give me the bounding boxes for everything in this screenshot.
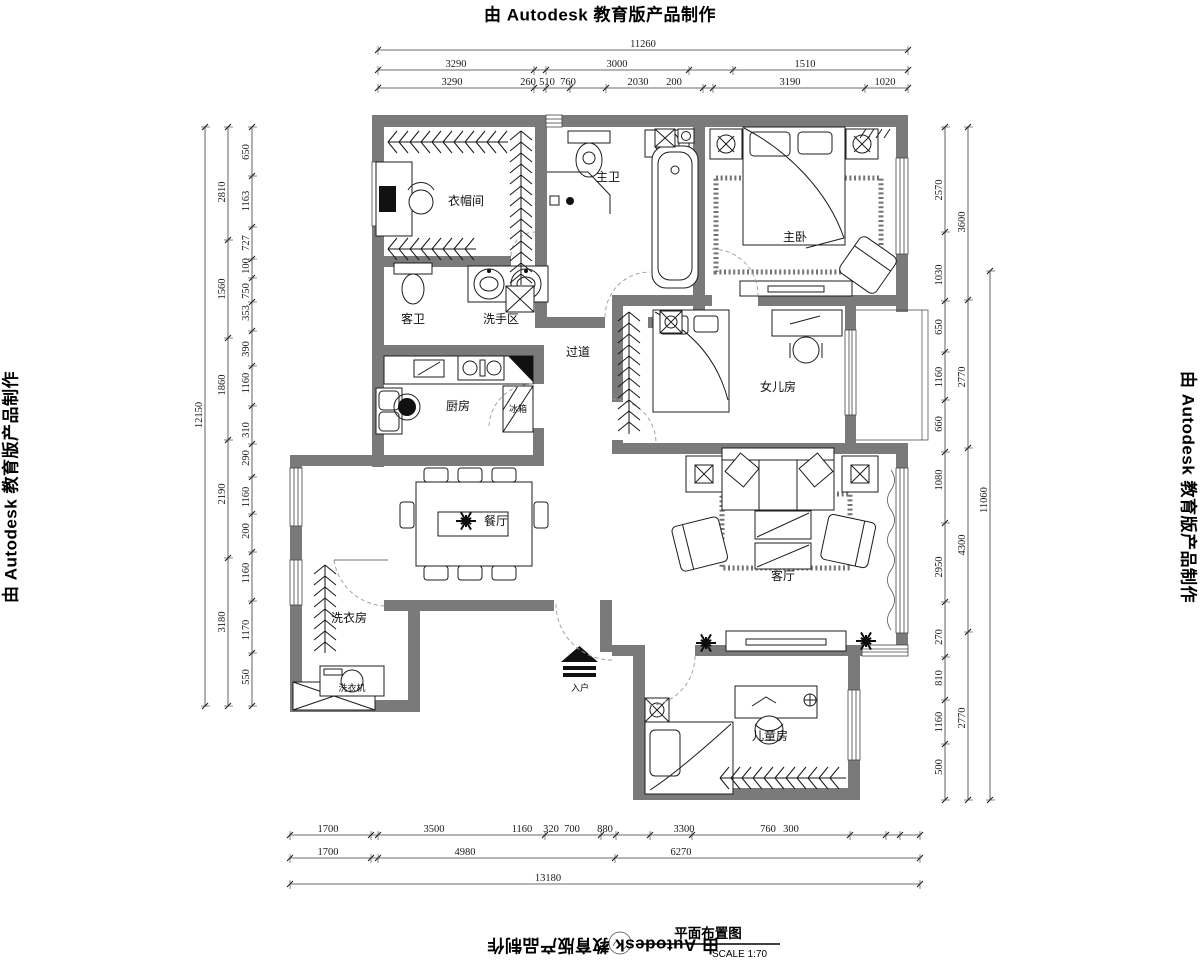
- watermark-text: 由: [1179, 371, 1198, 394]
- dim-label: 1860: [217, 375, 228, 396]
- dim-label: 390: [241, 341, 252, 357]
- room-label-kitchen: 厨房: [446, 398, 470, 413]
- room-label-daughter-room: 女儿房: [760, 379, 796, 394]
- dim-label: 650: [241, 144, 252, 160]
- room-label-cloakroom: 衣帽间: [448, 193, 484, 208]
- dim-chain-bottom-total: 13180: [287, 873, 923, 889]
- dim-label: 290: [241, 450, 252, 466]
- dim-label: 1030: [934, 265, 945, 286]
- dim-label: 200: [241, 523, 252, 539]
- watermark-top: 由 Autodesk 教育版产品制作: [484, 1, 716, 26]
- side-table-right: [842, 456, 878, 492]
- dim-chain-bottom-inner: 1700350011603207008803300760300: [287, 824, 923, 840]
- annotation-fridge: 冰箱: [509, 403, 527, 414]
- dim-label: 1160: [512, 824, 533, 835]
- dim-label: 12150: [194, 402, 205, 428]
- dim-label: 1160: [934, 367, 945, 388]
- dim-label: 500: [934, 759, 945, 775]
- entrance-arrow-icon: [561, 646, 598, 677]
- watermark-text: 教育版产品制作: [2, 371, 21, 499]
- dim-label: 550: [241, 669, 252, 685]
- window-left-lower-b: [290, 560, 302, 605]
- window-left-lower-a: [290, 468, 302, 526]
- dim-label: 3000: [607, 59, 628, 70]
- dim-label: 4300: [957, 535, 968, 556]
- dim-label: 700: [564, 824, 580, 835]
- room-label-master-bath: 主卫: [596, 170, 620, 184]
- dim-label: 2950: [934, 557, 945, 578]
- dim-label: 3190: [780, 77, 801, 88]
- dim-chain-right-mid: 3600277043002770: [957, 124, 973, 803]
- dim-label: 660: [934, 416, 945, 432]
- floor-plan-svg: 1126032903000151032902605107602030200319…: [0, 0, 1200, 960]
- watermark-text: 由: [696, 936, 719, 955]
- dim-label: 1080: [934, 470, 945, 491]
- watermark-brand: Autodesk: [615, 936, 696, 955]
- dim-label: 310: [241, 422, 252, 438]
- room-label-guest-bath: 客卫: [401, 311, 425, 326]
- dim-label: 100: [241, 258, 252, 274]
- window-children-right: [848, 690, 860, 760]
- room-label-dining-room: 餐厅: [484, 513, 508, 528]
- watermark-left: 由 Autodesk 教育版产品制作: [0, 371, 22, 603]
- cad-floorplan-sheet: 1126032903000151032902605107602030200319…: [0, 0, 1200, 960]
- dim-label: 11060: [979, 487, 990, 513]
- dim-label: 1170: [241, 620, 252, 641]
- dim-label: 2770: [957, 708, 968, 729]
- nightstand-left: [710, 129, 742, 159]
- wardrobe-rail: [388, 131, 508, 153]
- armchair-left: [671, 516, 729, 572]
- dim-label: 2030: [628, 77, 649, 88]
- master-tv-cabinet: [740, 281, 852, 296]
- wardrobe-rail: [510, 131, 532, 285]
- coffee-tables: [755, 511, 811, 569]
- watermark-text: 由: [2, 580, 21, 603]
- dim-label: 1020: [875, 77, 896, 88]
- kitchen-sink: [376, 388, 420, 434]
- dim-label: 270: [934, 629, 945, 645]
- dim-label: 300: [783, 824, 799, 835]
- dim-label: 2570: [934, 180, 945, 201]
- annotation-washer: 洗衣机: [338, 682, 365, 693]
- dim-label: 3290: [442, 77, 463, 88]
- dim-label: 2810: [217, 182, 228, 203]
- dim-label: 2190: [217, 484, 228, 505]
- room-label-laundry: 洗衣房: [331, 610, 367, 625]
- cloakroom-desk: [376, 162, 434, 236]
- dim-chain-left-inner: 6501163727100750353390116031029011602001…: [241, 124, 257, 709]
- dining-set: [400, 468, 548, 580]
- dim-label: 880: [597, 824, 613, 835]
- kitchen-counter: [384, 356, 533, 384]
- dim-label: 11260: [630, 39, 656, 50]
- window-top-small: [546, 115, 562, 127]
- dim-label: 1700: [318, 824, 339, 835]
- dim-label: 750: [241, 283, 252, 299]
- bay-window-daughter: [856, 310, 928, 440]
- dim-label: 760: [560, 77, 576, 88]
- watermark-text: 教育版产品制作: [1179, 475, 1198, 603]
- watermark-brand: Autodesk: [1179, 394, 1198, 475]
- dim-label: 1160: [241, 373, 252, 394]
- tv-stand: [726, 631, 846, 651]
- dim-chain-left-mid: 28101560186021903180: [217, 124, 233, 709]
- room-label-hallway: 过道: [566, 345, 590, 359]
- dim-label: 2770: [957, 367, 968, 388]
- watermark-text: 教育版产品制作: [588, 6, 716, 25]
- bathtub: [652, 146, 698, 288]
- annotation-entry: 入户: [571, 682, 589, 693]
- guest-toilet: [394, 263, 432, 304]
- dim-label: 1510: [795, 59, 816, 70]
- dim-chain-top-total: 11260: [375, 39, 911, 55]
- dim-label: 1700: [318, 847, 339, 858]
- dim-label: 727: [241, 235, 252, 251]
- dim-label: 3500: [424, 824, 445, 835]
- dim-label: 1163: [241, 191, 252, 212]
- dim-chain-right-total: 11060: [979, 268, 995, 803]
- armchair-right: [820, 514, 877, 569]
- room-label-wash-area: 洗手区: [483, 312, 519, 326]
- sofa: [722, 448, 834, 510]
- dim-chain-left-total: 12150: [194, 124, 210, 709]
- dim-label: 3180: [217, 612, 228, 633]
- dim-label: 260: [520, 77, 536, 88]
- dim-chain-right-inner: 257010306501160660108029502708101160500: [934, 124, 950, 803]
- dim-label: 4980: [455, 847, 476, 858]
- room-label-living-room: 客厅: [771, 568, 795, 583]
- watermark-text: 由: [484, 6, 507, 25]
- side-table-left: [686, 456, 722, 492]
- dim-label: 1160: [241, 487, 252, 508]
- dim-label: 200: [666, 77, 682, 88]
- daughter-desk: [772, 310, 842, 363]
- room-label-master-bedroom: 主卧: [783, 230, 807, 244]
- dim-label: 353: [241, 305, 252, 321]
- dim-label: 3300: [674, 824, 695, 835]
- watermark-right: 由 Autodesk 教育版产品制作: [1178, 371, 1200, 603]
- room-label-children-room: 儿童房: [752, 728, 788, 743]
- dim-label: 510: [539, 77, 555, 88]
- dim-label: 3600: [957, 212, 968, 233]
- dim-chain-top-mid: 329030001510: [375, 59, 911, 75]
- dim-label: 3290: [446, 59, 467, 70]
- dim-chain-bottom-mid: 170049806270: [287, 847, 923, 863]
- watermark-text: 教育版产品制作: [487, 936, 615, 955]
- watermark-brand: Autodesk: [507, 6, 588, 25]
- curtain-line: [888, 470, 895, 630]
- watermark-brand: Autodesk: [2, 499, 21, 580]
- window-daughter-right: [845, 330, 856, 415]
- watermark-bottom: 由 Autodesk 教育版产品制作: [487, 935, 719, 960]
- dim-chain-top-inner: 3290260510760203020031901020: [375, 77, 911, 93]
- dim-label: 320: [543, 824, 559, 835]
- window-living-right: [896, 468, 908, 633]
- drawing-scale: SCALE 1:70: [712, 949, 767, 960]
- dim-label: 810: [934, 670, 945, 686]
- dim-label: 1560: [217, 279, 228, 300]
- window-master-right: [896, 158, 908, 254]
- wardrobe-rail: [720, 767, 846, 789]
- dim-label: 13180: [535, 873, 561, 884]
- dim-label: 760: [760, 824, 776, 835]
- children-bed: [645, 722, 733, 794]
- dim-label: 1160: [241, 563, 252, 584]
- dim-label: 1160: [934, 712, 945, 733]
- wardrobe-rail: [314, 565, 336, 653]
- dim-label: 6270: [671, 847, 692, 858]
- nightstand-right: [846, 129, 878, 159]
- dim-label: 650: [934, 319, 945, 335]
